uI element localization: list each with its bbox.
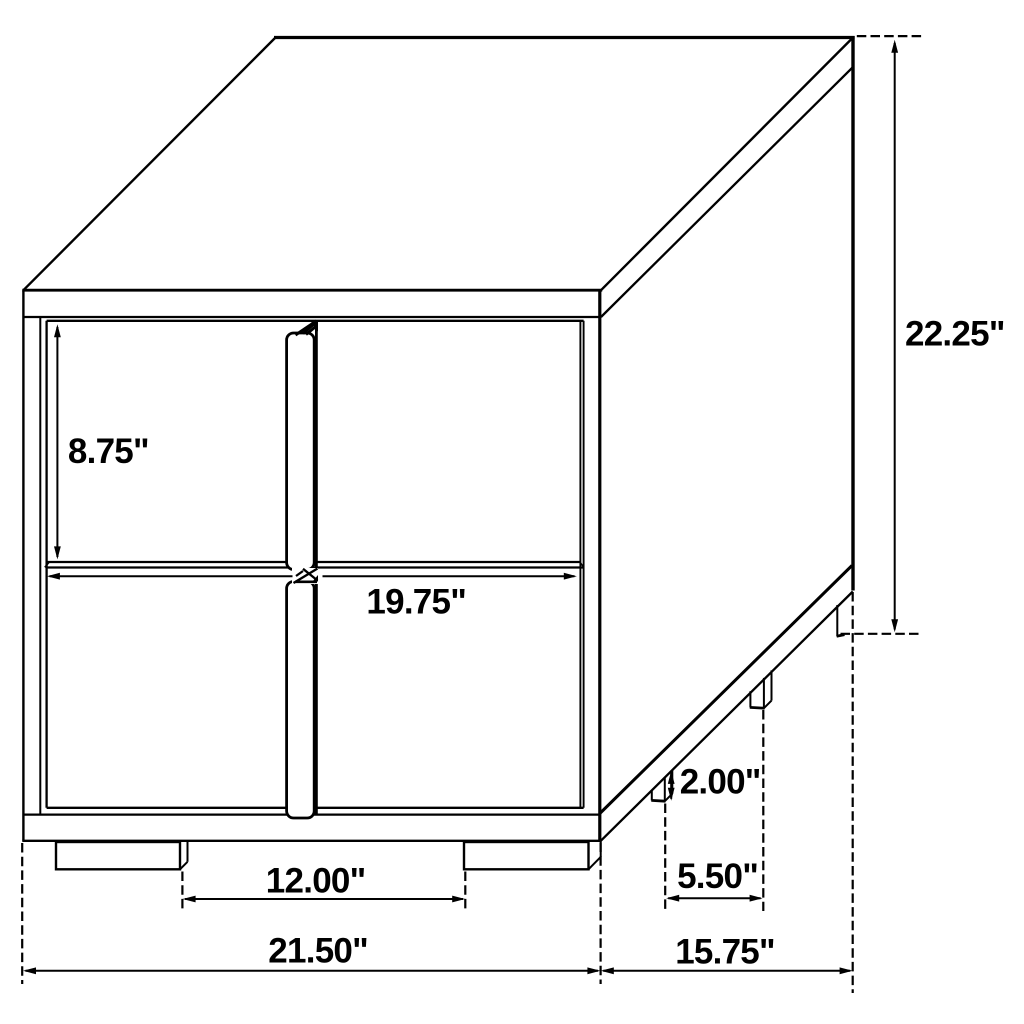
svg-text:8.75": 8.75" [68, 432, 149, 471]
svg-text:15.75": 15.75" [675, 933, 775, 972]
svg-text:22.25": 22.25" [905, 314, 1005, 353]
svg-text:5.50": 5.50" [677, 857, 758, 896]
svg-text:2.00": 2.00" [680, 763, 761, 802]
svg-text:21.50": 21.50" [268, 931, 368, 970]
svg-text:12.00": 12.00" [266, 861, 366, 900]
svg-text:19.75": 19.75" [366, 583, 466, 622]
